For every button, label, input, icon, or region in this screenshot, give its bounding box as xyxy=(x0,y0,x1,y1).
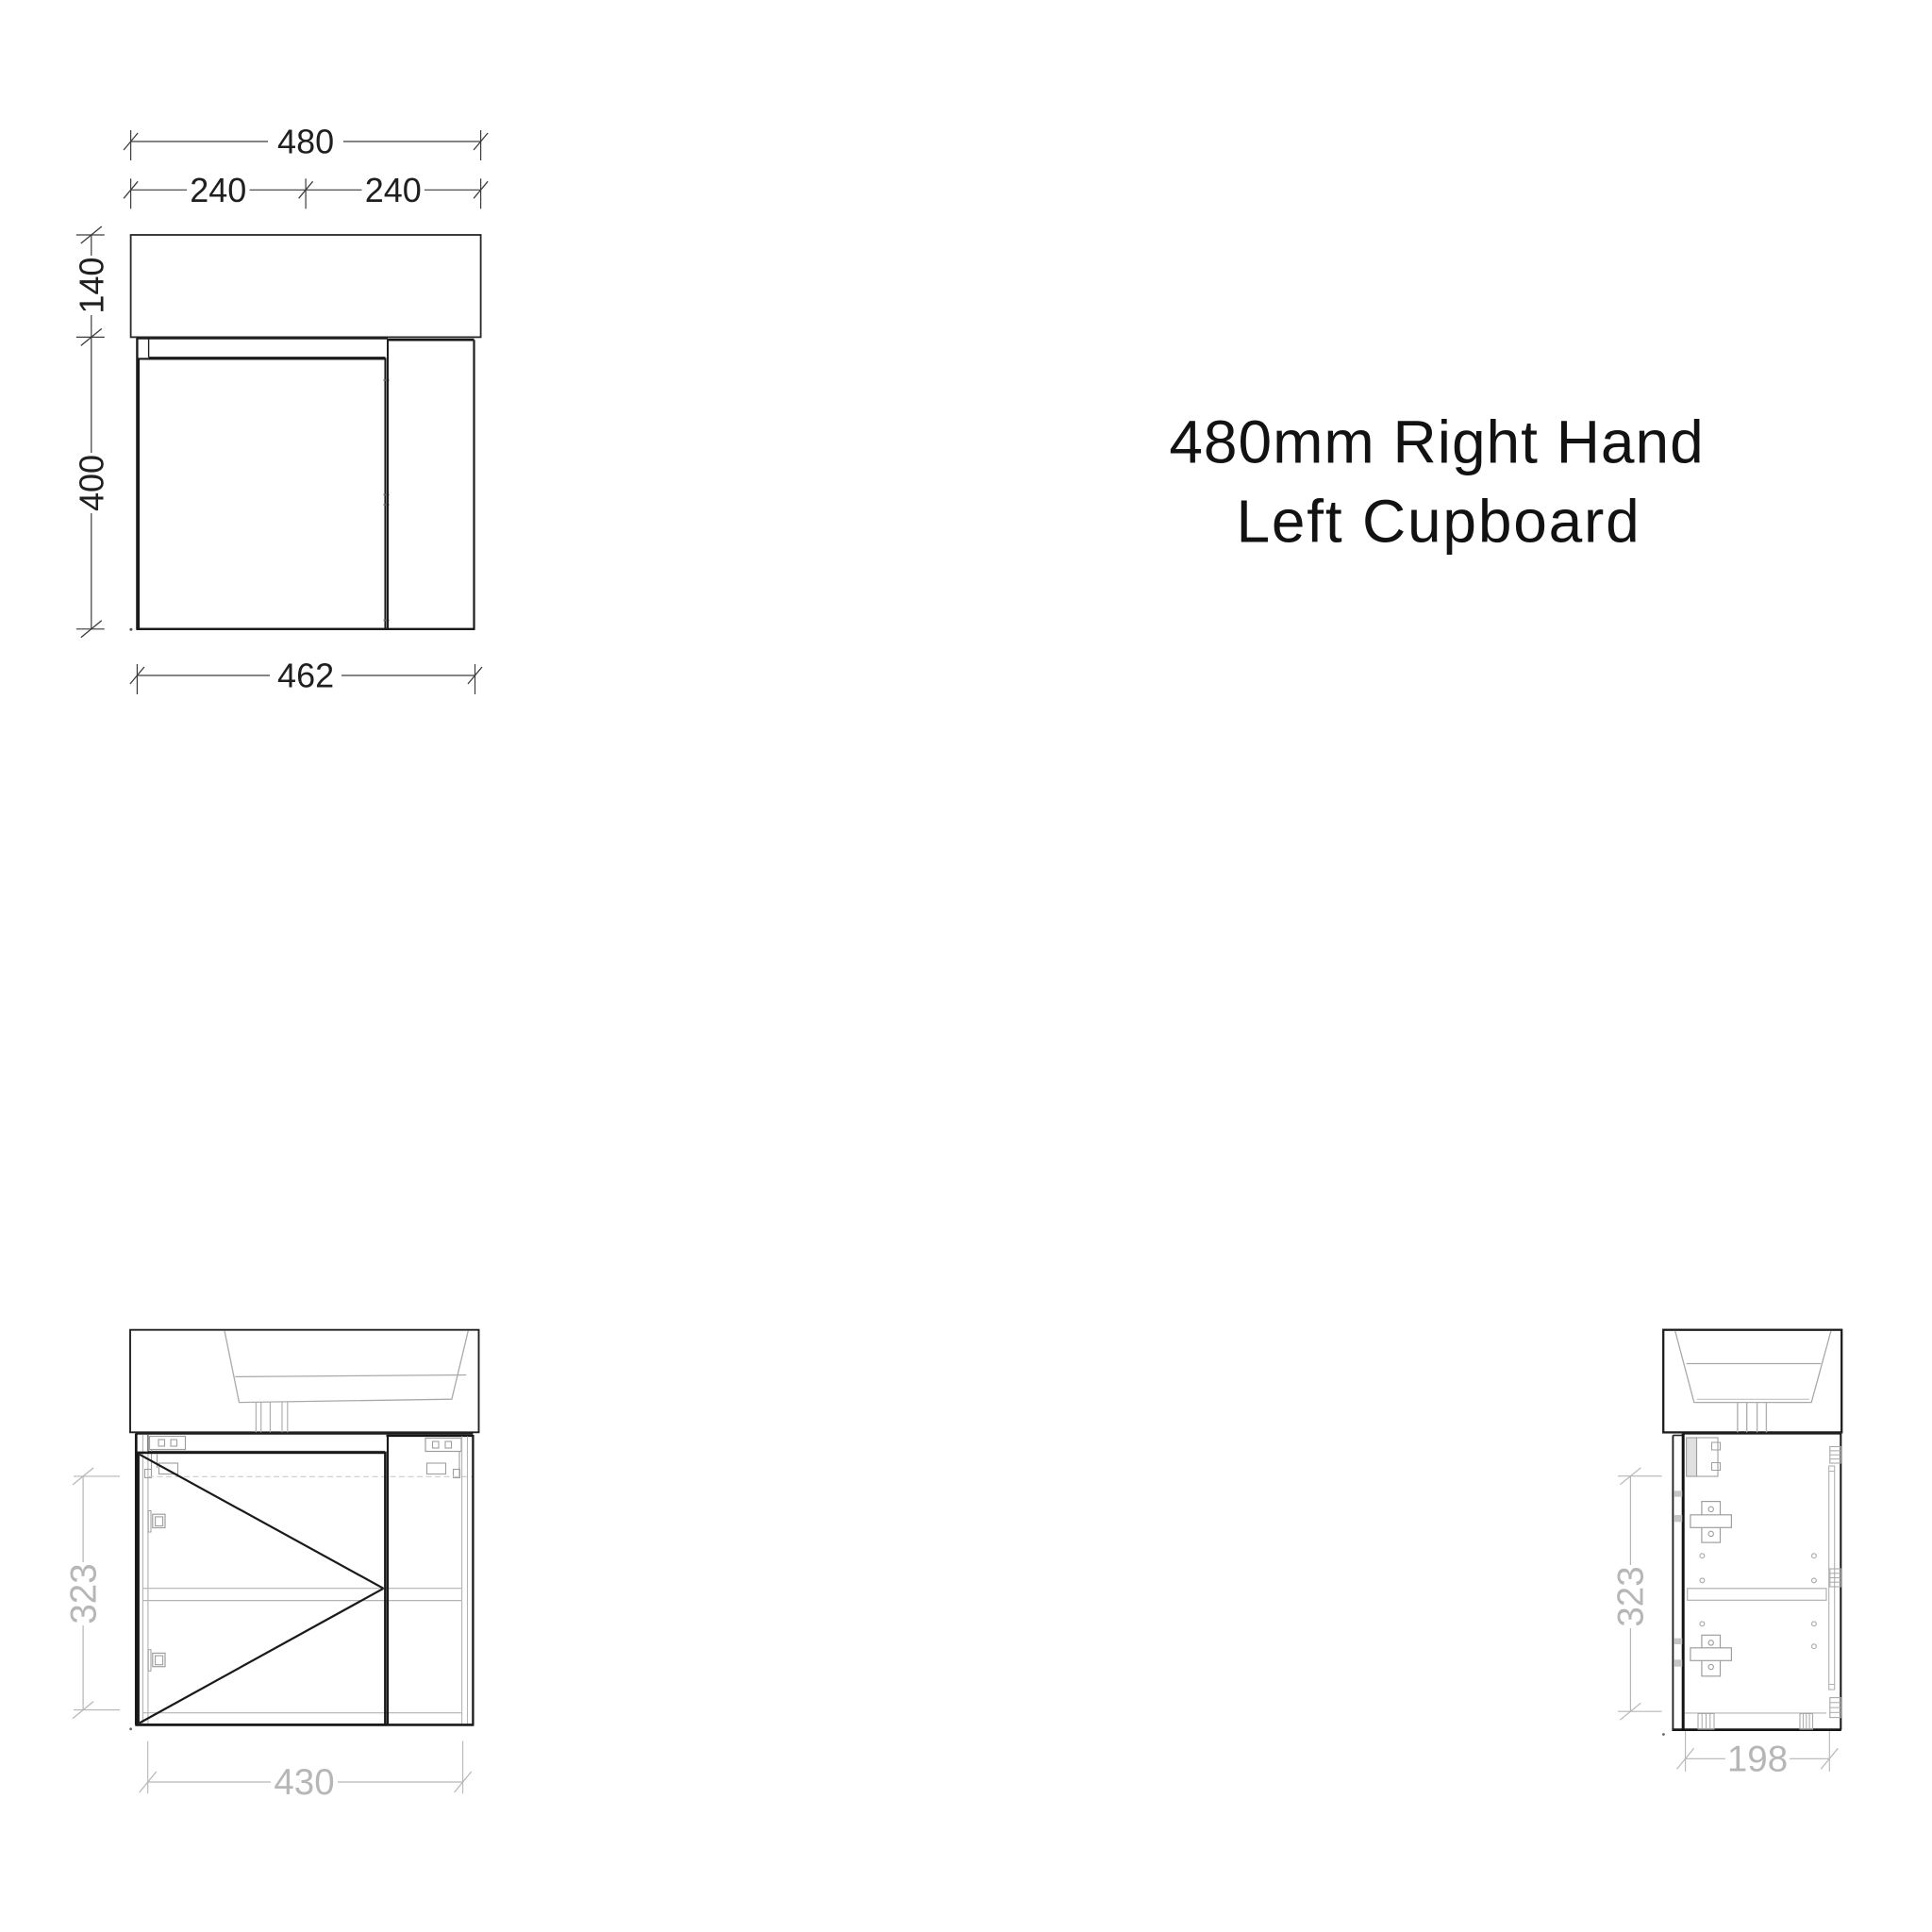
svg-text:480mm Right Hand: 480mm Right Hand xyxy=(1169,408,1704,476)
svg-text:400: 400 xyxy=(72,455,110,511)
svg-text:462: 462 xyxy=(277,657,334,695)
svg-text:240: 240 xyxy=(190,171,246,209)
svg-text:198: 198 xyxy=(1727,1740,1788,1780)
svg-text:240: 240 xyxy=(365,171,422,209)
svg-text:323: 323 xyxy=(1611,1566,1652,1626)
svg-text:430: 430 xyxy=(274,1762,334,1803)
svg-text:140: 140 xyxy=(72,258,110,314)
svg-text:480: 480 xyxy=(277,123,334,161)
svg-text:323: 323 xyxy=(63,1563,104,1624)
svg-text:Left Cupboard: Left Cupboard xyxy=(1236,487,1641,555)
